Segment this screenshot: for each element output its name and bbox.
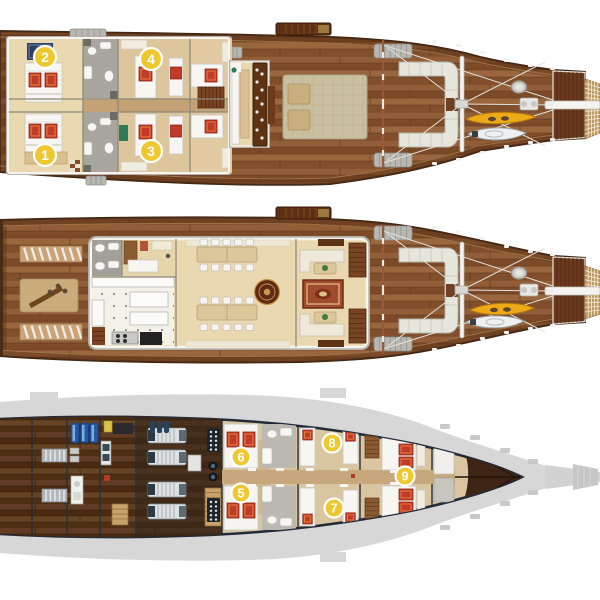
svg-text:1: 1 [41, 147, 49, 163]
svg-text:6: 6 [237, 450, 244, 465]
svg-text:7: 7 [330, 501, 337, 516]
svg-text:3: 3 [147, 143, 155, 159]
svg-text:4: 4 [147, 51, 155, 67]
svg-text:8: 8 [328, 436, 335, 451]
svg-text:2: 2 [41, 49, 49, 65]
svg-text:5: 5 [237, 486, 244, 501]
svg-text:9: 9 [401, 469, 408, 484]
